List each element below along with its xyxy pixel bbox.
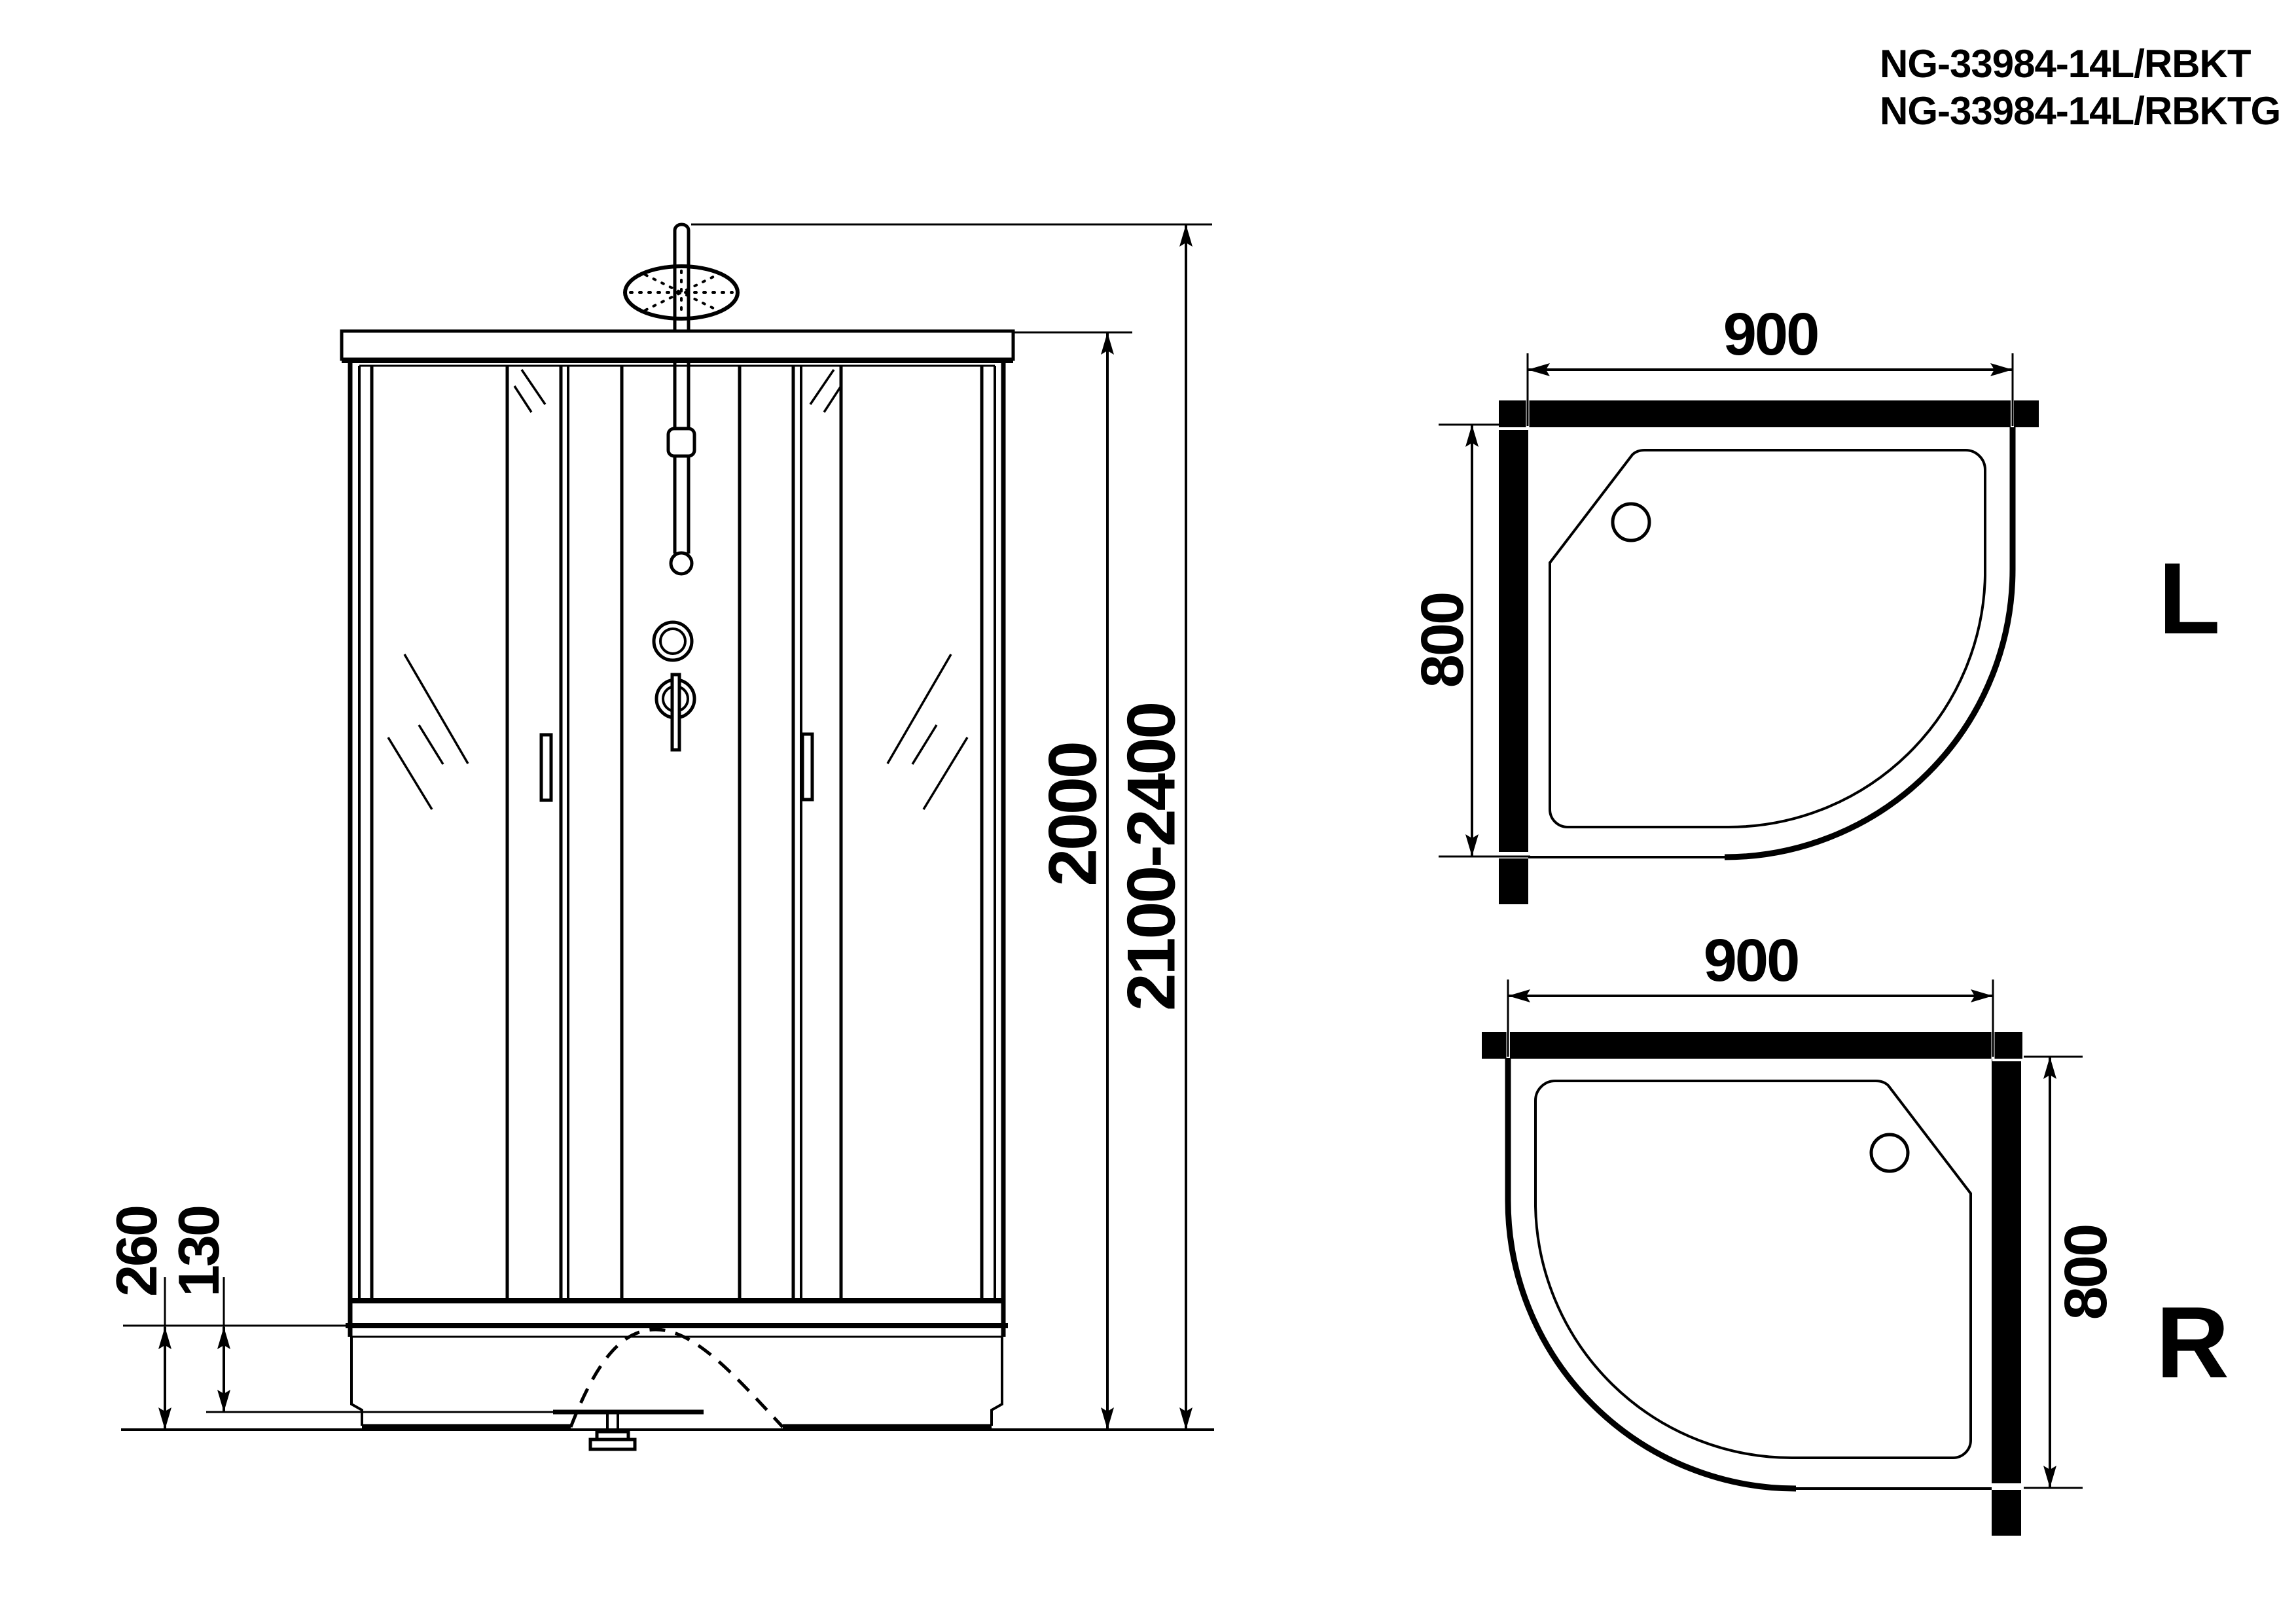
shower-controls [654,622,694,750]
shower-cabin-diagram: NG-33984-14L/RBKT NG-33984-14L/RBKTG 200… [0,0,2296,1624]
model-number-line2: NG-33984-14L/RBKTG [1880,89,2280,133]
technical-drawing-page: NG-33984-14L/RBKT NG-33984-14L/RBKTG 200… [0,0,2296,1624]
dim-label-width-plan-r: 900 [1704,927,1799,994]
version-letter-l: L [2159,542,2221,655]
shower-rail [668,361,694,574]
cabin-top-frame [342,331,1013,366]
tray-inner-rim-l [1550,450,1985,827]
dim-label-base-half-height: 130 [166,1207,231,1297]
dim-label-depth-plan-r: 800 [2053,1226,2119,1320]
dim-label-total-height: 2100-2400 [1113,703,1189,1011]
door-handle-left [541,735,551,800]
rail-end-knob [671,553,692,574]
tray-inner-rim-r [1535,1081,1971,1458]
shower-tray-base [121,1301,1214,1449]
drain-hole-plan-r [1871,1135,1908,1171]
tray-outline-plan-r [1508,1058,1992,1489]
dim-label-inner-height: 2000 [1035,743,1111,886]
glass-panels [350,359,1003,1337]
version-letter-r: R [2156,1286,2229,1399]
walls-plan-l [1499,400,2039,904]
rail-slider-bracket [668,429,694,456]
drain-hole-plan-l [1613,504,1649,540]
labels: NG-33984-14L/RBKT NG-33984-14L/RBKTG 200… [104,42,2280,1399]
dim-label-base-height: 260 [104,1207,169,1297]
plan-view-right-version [1482,980,2083,1536]
mixer-lever [672,675,679,750]
plan-view-left-version [1439,353,2039,904]
model-number-line1: NG-33984-14L/RBKT [1880,42,2251,86]
door-handle-right [802,734,812,800]
shower-head-icon [625,224,738,331]
walls-plan-r [1482,1032,2022,1536]
dim-label-width-plan-l: 900 [1723,301,1818,368]
tray-outline-plan-l [1528,427,2013,857]
dim-label-depth-plan-l: 800 [1409,593,1476,688]
